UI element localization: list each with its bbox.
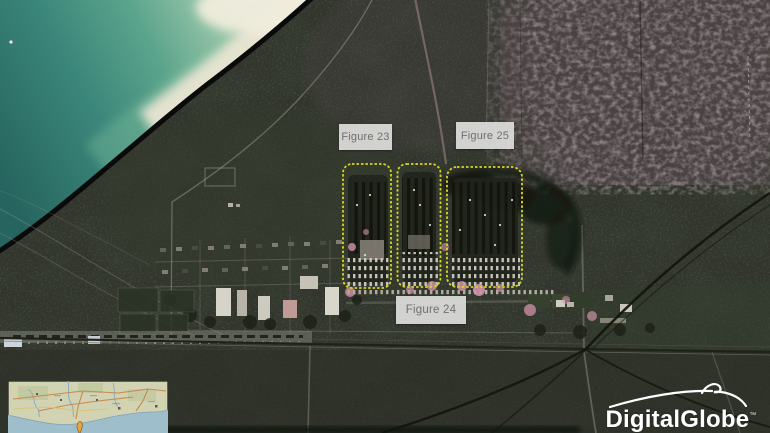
figure-24-label: Figure 24 (396, 296, 466, 324)
vehicle-park-center (400, 172, 438, 286)
bare-field-zone (500, 0, 770, 185)
vehicle-park-east (450, 178, 520, 286)
satellite-scene (0, 0, 770, 433)
digitalglobe-logo: DigitalGlobe™ (600, 382, 762, 433)
trademark-symbol: ™ (749, 412, 756, 419)
figure-25-label: Figure 25 (456, 122, 514, 149)
digitalglobe-wordmark: DigitalGlobe (606, 406, 750, 433)
satellite-image: Figure 23 Figure 25 Figure 24 DigitalGlo… (0, 0, 770, 433)
figure-23-label: Figure 23 (339, 124, 392, 150)
inset-map (8, 381, 168, 433)
